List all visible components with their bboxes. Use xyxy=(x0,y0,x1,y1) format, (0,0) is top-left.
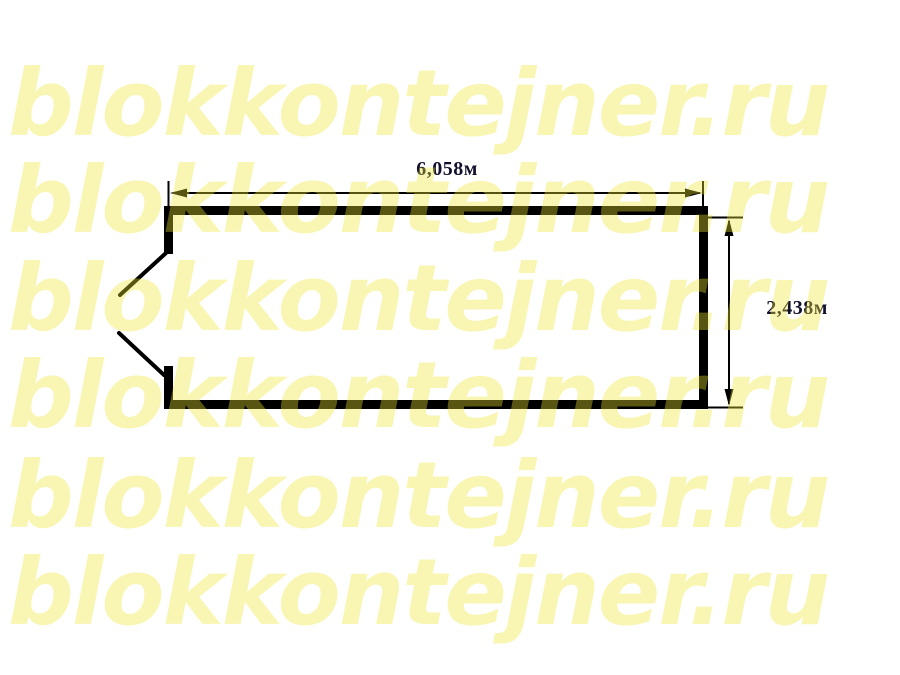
width-dimension xyxy=(169,181,704,210)
height-arrow-bottom xyxy=(725,389,734,406)
wall-right xyxy=(699,206,708,409)
width-arrow-left xyxy=(170,189,187,198)
door-leaves xyxy=(119,253,166,375)
height-dimension-label: 2,438м xyxy=(737,297,857,320)
wall-left-bottom xyxy=(164,366,173,409)
walls xyxy=(164,206,708,409)
door-leaf-top xyxy=(120,253,166,295)
width-arrow-right xyxy=(685,189,702,198)
door-leaf-bottom xyxy=(119,333,164,375)
wall-left-top xyxy=(164,206,173,254)
floor-plan-svg xyxy=(0,0,900,675)
wall-top xyxy=(164,206,708,215)
height-arrow-top xyxy=(725,219,734,236)
drawing-canvas: 6,058м 2,438м blokkontejner.ru blokkonte… xyxy=(0,0,900,675)
width-dimension-label: 6,058м xyxy=(387,158,507,181)
wall-bottom xyxy=(164,400,708,409)
